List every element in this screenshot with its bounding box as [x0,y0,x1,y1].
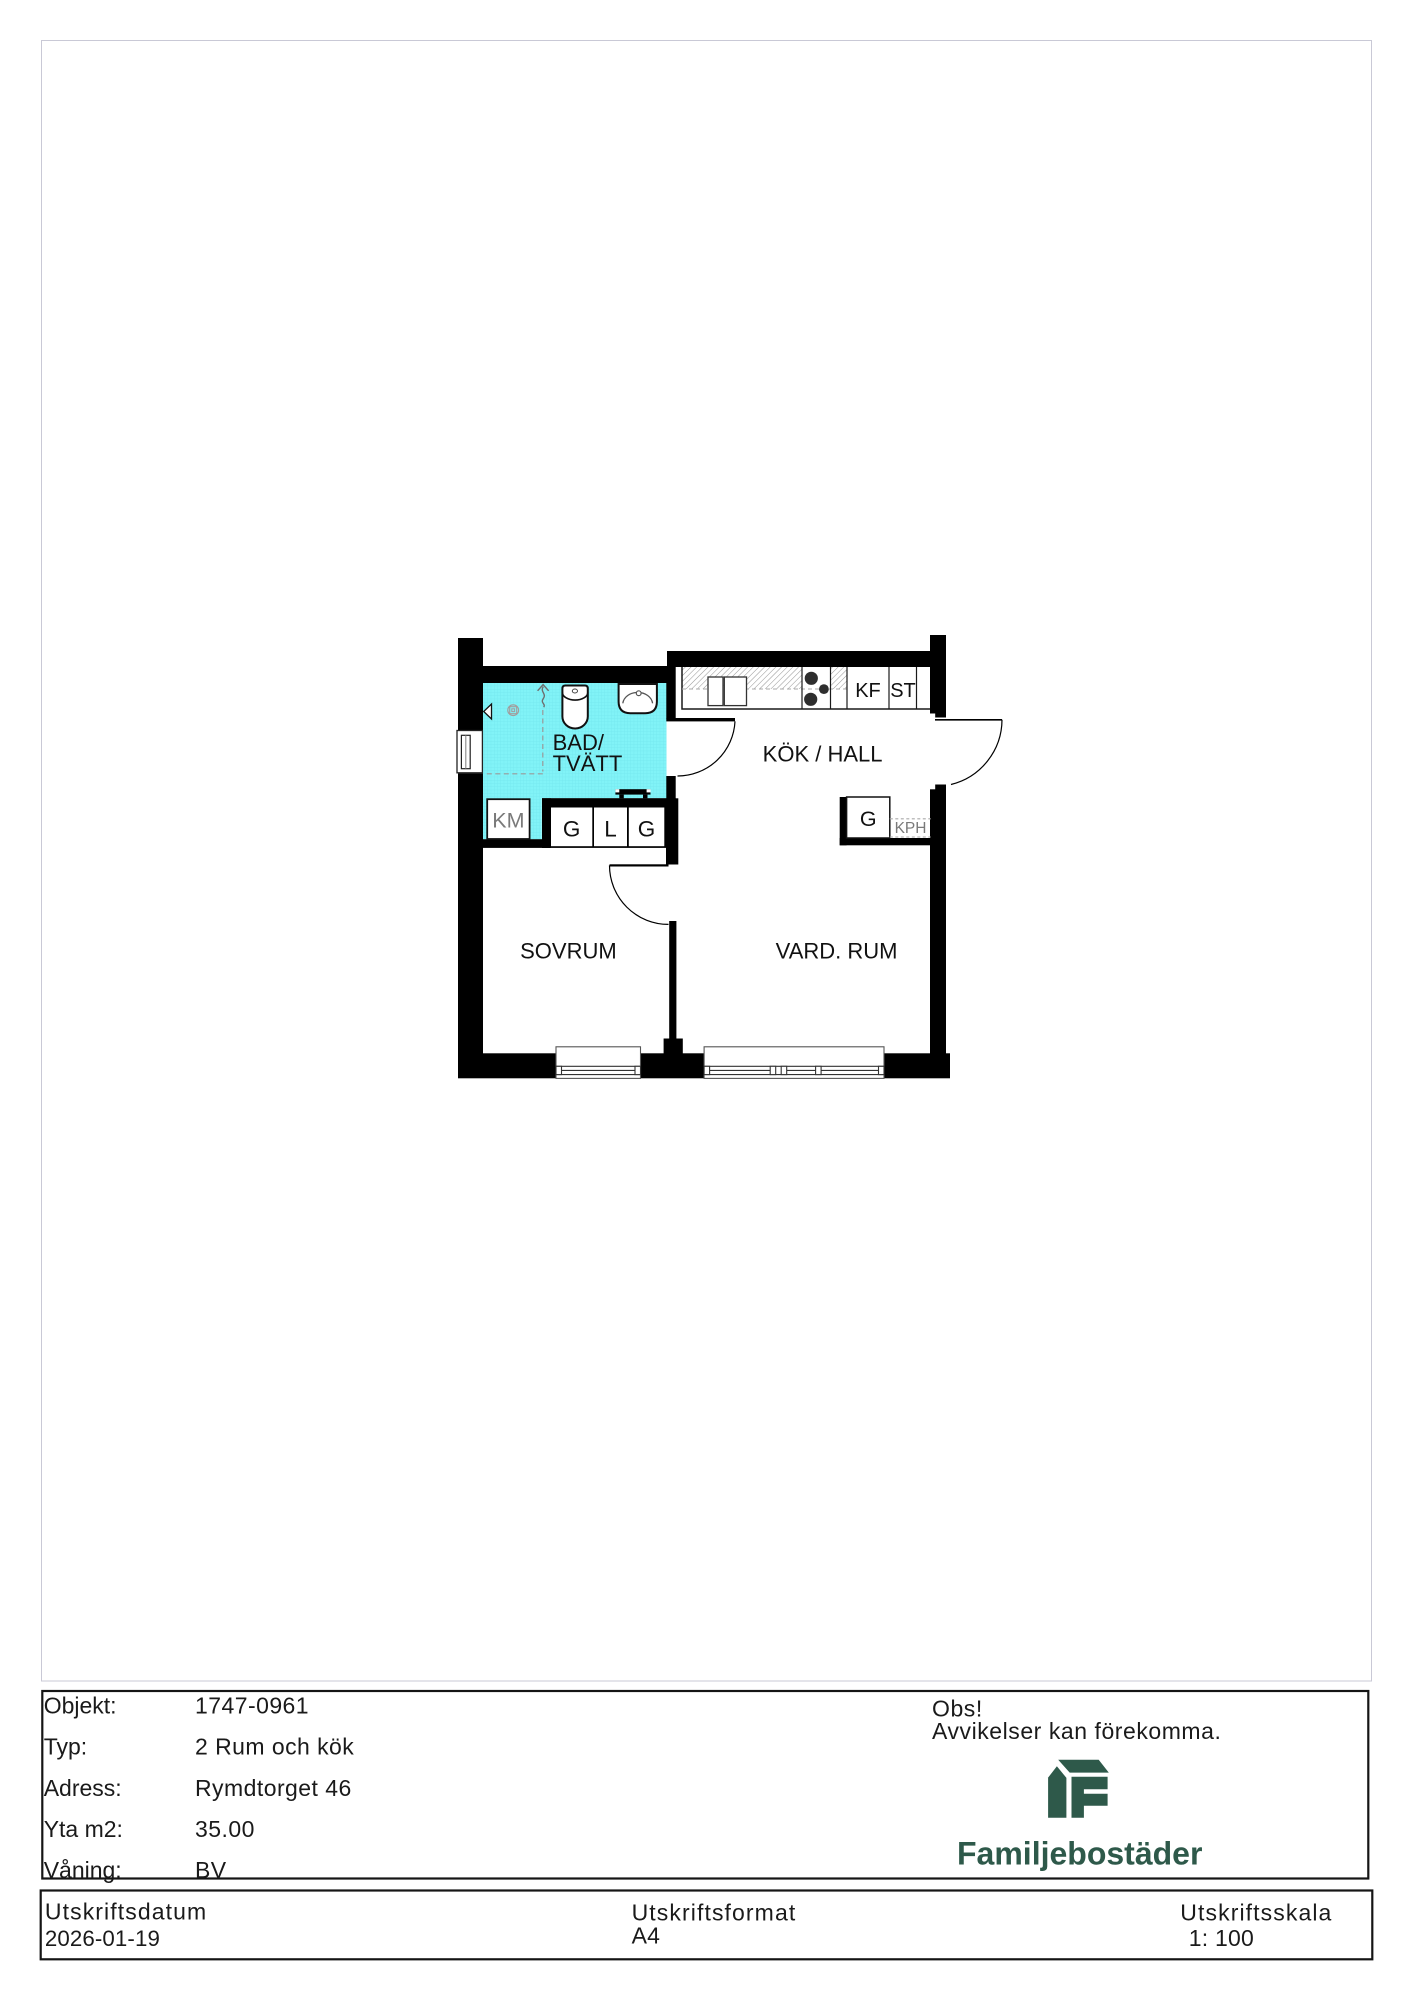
svg-text:Typ:: Typ: [44,1734,87,1760]
svg-text:G: G [860,807,877,831]
svg-text:2026-01-19: 2026-01-19 [45,1926,160,1951]
svg-text:1747-0961: 1747-0961 [195,1693,309,1719]
svg-text:KF: KF [855,680,881,702]
svg-text:Familjebostäder: Familjebostäder [957,1835,1202,1871]
svg-text:Adress:: Adress: [44,1775,122,1801]
svg-text:Objekt:: Objekt: [44,1693,117,1719]
svg-text:Yta m2:: Yta m2: [44,1816,123,1842]
svg-text:Utskriftsdatum: Utskriftsdatum [45,1899,207,1925]
svg-text:Våning:: Våning: [44,1857,122,1883]
svg-text:KPH: KPH [895,820,927,837]
svg-text:KM: KM [492,809,524,833]
svg-text:G: G [638,817,656,842]
svg-text:VARD. RUM: VARD. RUM [776,938,898,963]
svg-text:L: L [604,817,617,842]
svg-text:ST: ST [890,680,916,702]
svg-text:A4: A4 [632,1923,661,1949]
svg-text:TVÄTT: TVÄTT [553,751,623,776]
svg-text:KÖK / HALL: KÖK / HALL [763,741,883,766]
svg-text:2 Rum och kök: 2 Rum och kök [195,1734,354,1760]
svg-text:Rymdtorget 46: Rymdtorget 46 [195,1775,352,1801]
svg-text:1: 100: 1: 100 [1189,1925,1254,1951]
svg-text:35.00: 35.00 [195,1816,255,1842]
svg-text:Utskriftsskala: Utskriftsskala [1180,1900,1332,1926]
svg-text:Avvikelser kan förekomma.: Avvikelser kan förekomma. [932,1718,1221,1744]
svg-text:BV: BV [195,1857,227,1883]
svg-text:SOVRUM: SOVRUM [520,938,617,963]
svg-text:G: G [563,817,581,842]
